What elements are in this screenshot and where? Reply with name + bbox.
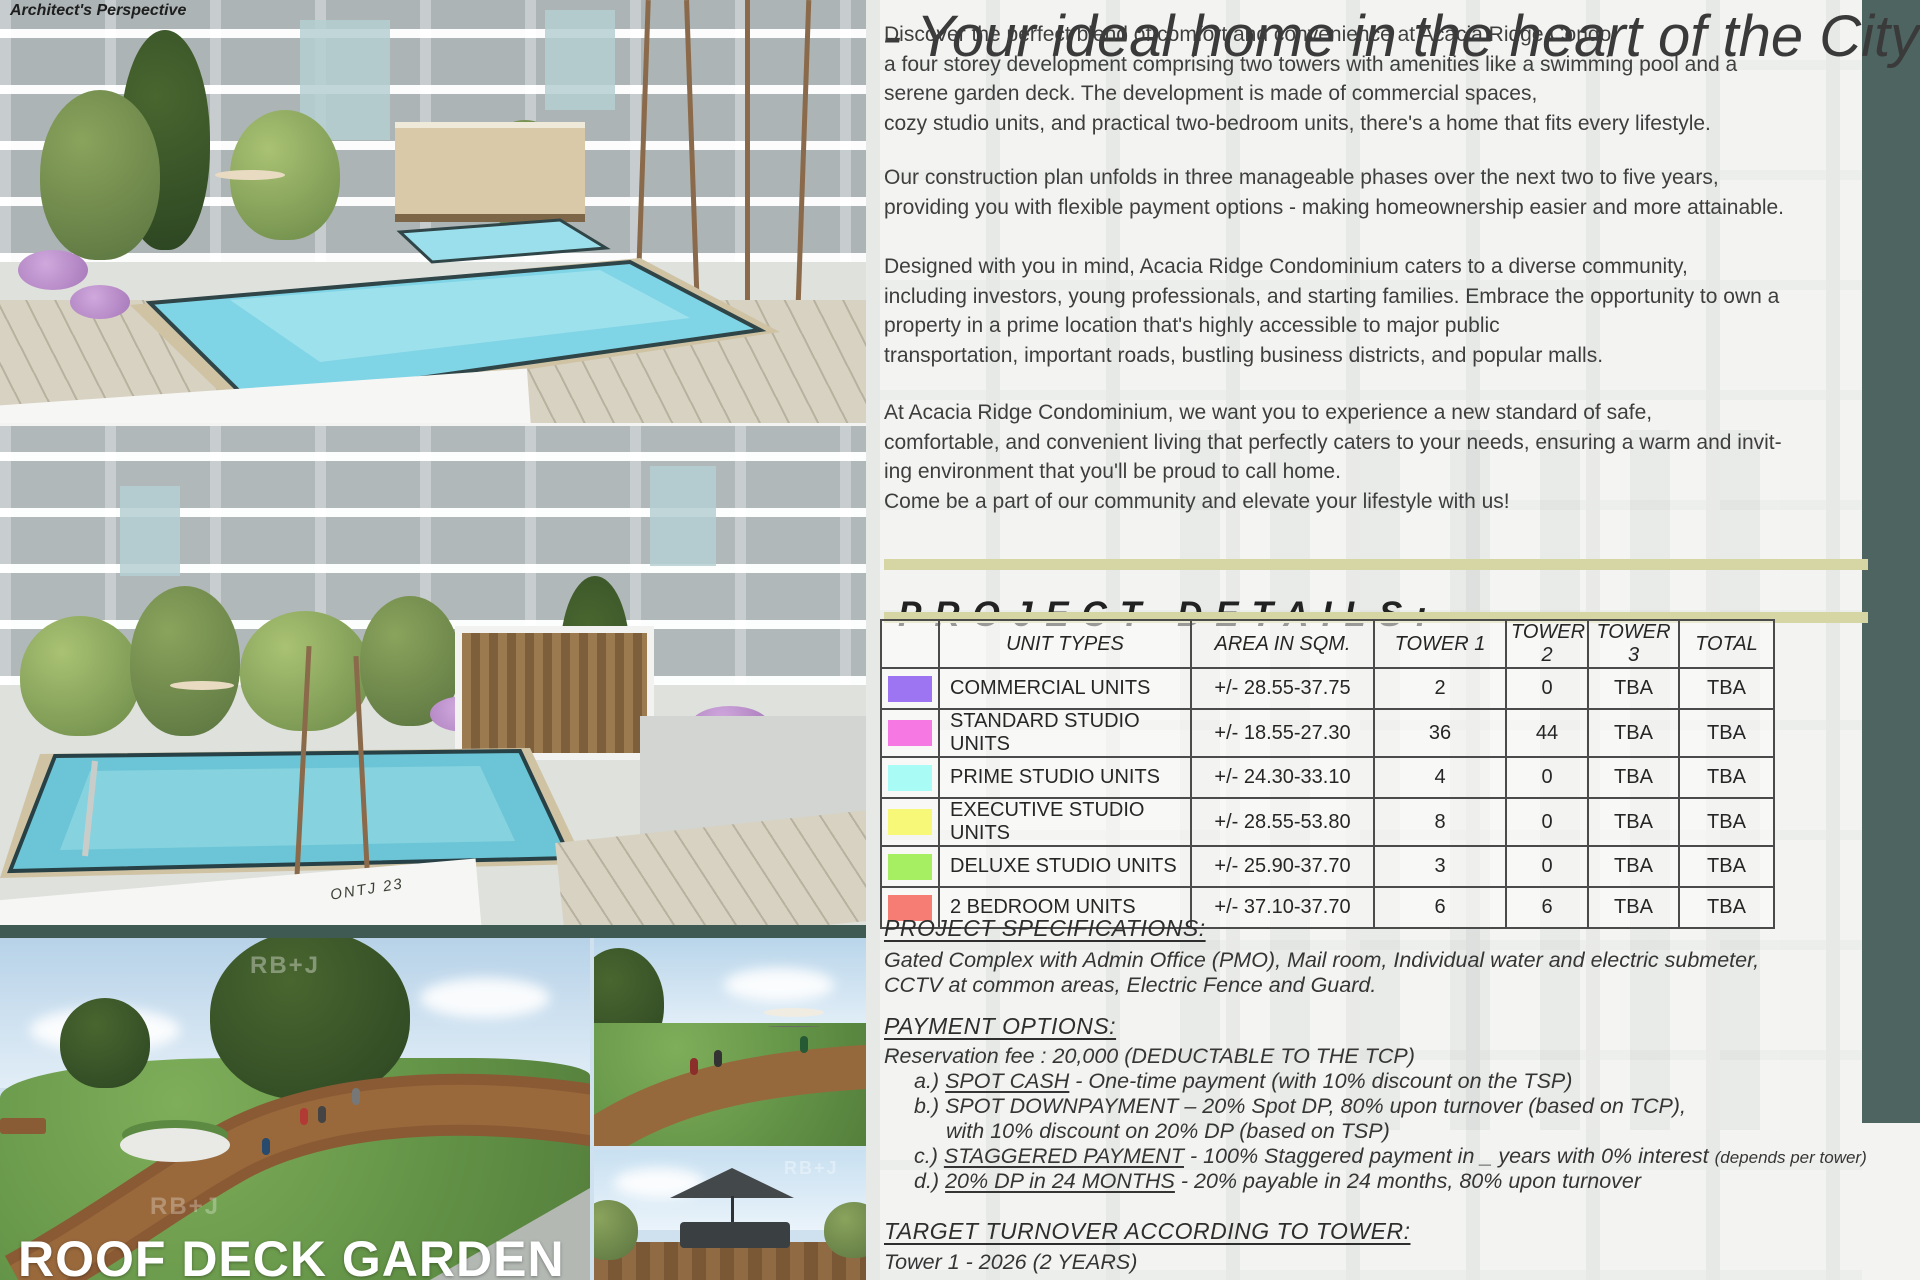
olive-bar-top [884,559,1868,570]
table-cell: 0 [1506,757,1588,798]
paragraph-line: transportation, important roads, bustlin… [884,341,1894,371]
payment-option-description: - 20% payable in 24 months, 80% upon tur… [1175,1169,1641,1193]
table-cell: TBA [1588,668,1679,709]
wood-path [594,938,866,1146]
table-header-cell: TOTAL [1679,620,1774,668]
table-cell: 2 [1374,668,1506,709]
table-cell: TBA [1679,846,1774,887]
render-pool-courtyard: Architect's Perspective [0,0,866,423]
paragraph-line: Our construction plan unfolds in three m… [884,163,1894,193]
paragraph-line: Come be a part of our community and elev… [884,487,1894,517]
table-cell: TBA [1588,798,1679,846]
table-cell: TBA [1679,668,1774,709]
table-cell: TBA [1679,757,1774,798]
paragraph-line: serene garden deck. The development is m… [884,79,1894,109]
payment-intro: Reservation fee : 20,000 (DEDUCTABLE TO … [884,1044,1867,1069]
person-figure [800,1036,808,1053]
table-cell: +/- 28.55-37.75 [1191,668,1374,709]
payment-option-prefix: b.) [914,1094,945,1118]
paragraph-line: including investors, young professionals… [884,282,1894,312]
table-row: EXECUTIVE STUDIO UNITS+/- 28.55-53.8080T… [881,798,1774,846]
flower-bed [70,285,130,319]
bench [0,1118,46,1134]
unit-color-swatch [888,676,932,702]
table-cell: TBA [1588,709,1679,757]
roof-deck-photo-top [594,938,866,1146]
roof-deck-photo-bottom: RB+J [594,1150,866,1280]
watermark: RB+J [250,952,320,980]
table-cell: TBA [1679,798,1774,846]
payment-option: d.) 20% DP in 24 MONTHS - 20% payable in… [884,1169,1867,1194]
table-cell: 36 [1374,709,1506,757]
table-cell: STANDARD STUDIO UNITS [939,709,1191,757]
table-cell: 4 [1374,757,1506,798]
person-figure [714,1050,722,1067]
umbrella [170,681,234,690]
table-row: PRIME STUDIO UNITS+/- 24.30-33.1040TBATB… [881,757,1774,798]
unit-color-swatch [888,809,932,835]
payment-option-description: – 20% Spot DP, 80% upon turnover (based … [1178,1094,1686,1118]
roof-deck-main-photo: RB+J RB+J ROOF DECK GARDEN [0,938,590,1280]
teal-divider-strip [0,925,866,938]
intro-paragraph-4: At Acacia Ridge Condominium, we want you… [884,398,1894,516]
umbrella [764,1008,824,1017]
payment-option-continuation: with 10% discount on 20% DP (based on TS… [884,1119,1867,1144]
intro-paragraph-3: Designed with you in mind, Acacia Ridge … [884,252,1894,370]
table-header-cell: AREA IN SQM. [1191,620,1374,668]
unit-color-swatch [888,854,932,880]
specifications-line: Gated Complex with Admin Office (PMO), M… [884,948,1759,973]
table-cell: 8 [1374,798,1506,846]
table-header-row: UNIT TYPESAREA IN SQM.TOWER 1TOWER 2TOWE… [881,620,1774,668]
unit-color-swatch [888,765,932,791]
table-cell: 0 [1506,668,1588,709]
architect-perspective-label: Architect's Perspective [10,2,186,20]
table-cell: 3 [1374,846,1506,887]
specifications-heading: PROJECT SPECIFICATIONS: [884,915,1759,942]
watermark: RB+J [150,1193,220,1221]
table-row: STANDARD STUDIO UNITS+/- 18.55-27.303644… [881,709,1774,757]
project-specifications-section: PROJECT SPECIFICATIONS: Gated Complex wi… [884,915,1759,998]
unit-color-swatch [888,720,932,746]
render-garden-pool: ONTJ 23 [0,426,866,925]
unit-color-cell [881,798,939,846]
paragraph-line: providing you with flexible payment opti… [884,193,1894,223]
table-row: COMMERCIAL UNITS+/- 28.55-37.7520TBATBA [881,668,1774,709]
paragraph-line: property in a prime location that's high… [884,311,1894,341]
table-header-cell [881,620,939,668]
unit-color-cell [881,757,939,798]
payment-option-name: SPOT DOWNPAYMENT [945,1094,1178,1118]
table-cell: +/- 24.30-33.10 [1191,757,1374,798]
person-figure [690,1058,698,1075]
table-cell: 0 [1506,846,1588,887]
project-details-table: UNIT TYPESAREA IN SQM.TOWER 1TOWER 2TOWE… [880,619,1775,929]
unit-color-cell [881,846,939,887]
payment-option-prefix: d.) [914,1169,945,1193]
paragraph-line: a four storey development comprising two… [884,50,1894,80]
paragraph-line: Discover the perfect blend of comfort an… [884,20,1894,50]
flower-bed [18,250,88,290]
umbrella [215,170,285,180]
curved-wood-path [0,938,590,1280]
payment-option-description: - 100% Staggered payment in _ years with… [1184,1144,1715,1168]
person-figure [262,1138,270,1155]
table-cell: DELUXE STUDIO UNITS [939,846,1191,887]
table-cell: +/- 25.90-37.70 [1191,846,1374,887]
table-cell: +/- 28.55-53.80 [1191,798,1374,846]
pool-shape [0,0,866,423]
payment-option: c.) STAGGERED PAYMENT - 100% Staggered p… [884,1144,1867,1169]
table-cell: PRIME STUDIO UNITS [939,757,1191,798]
table-header-cell: TOWER 2 [1506,620,1588,668]
table-cell: COMMERCIAL UNITS [939,668,1191,709]
table-header-cell: TOWER 1 [1374,620,1506,668]
intro-paragraph-1: Discover the perfect blend of comfort an… [884,20,1894,138]
payment-heading: PAYMENT OPTIONS: [884,1013,1867,1040]
roof-deck-garden-title: ROOF DECK GARDEN [18,1230,565,1280]
turnover-line: Tower 1 - 2026 (2 YEARS) [884,1250,1411,1275]
payment-option-prefix: c.) [914,1144,944,1168]
payment-option: b.) SPOT DOWNPAYMENT – 20% Spot DP, 80% … [884,1094,1867,1119]
payment-option-name: STAGGERED PAYMENT [944,1144,1184,1168]
table-cell: +/- 18.55-27.30 [1191,709,1374,757]
umbrella-canopy [670,1168,794,1198]
payment-option-name: SPOT CASH [945,1069,1069,1093]
specifications-line: CCTV at common areas, Electric Fence and… [884,973,1759,998]
table-cell: EXECUTIVE STUDIO UNITS [939,798,1191,846]
table-cell: TBA [1588,846,1679,887]
payment-option: a.) SPOT CASH - One-time payment (with 1… [884,1069,1867,1094]
paragraph-line: ing environment that you'll be proud to … [884,457,1894,487]
payment-option-list: a.) SPOT CASH - One-time payment (with 1… [884,1069,1867,1194]
round-planter [120,1128,230,1162]
unit-color-cell [881,668,939,709]
target-turnover-section: TARGET TURNOVER ACCORDING TO TOWER: Towe… [884,1218,1411,1275]
payment-option-note: (depends per tower) [1715,1148,1867,1167]
payment-option-name: 20% DP in 24 MONTHS [945,1169,1175,1193]
table-header-cell: TOWER 3 [1588,620,1679,668]
photo-roof-deck-garden: RB+J RB+J ROOF DECK GARDEN [0,938,866,1280]
payment-option-prefix: a.) [914,1069,945,1093]
unit-color-cell [881,709,939,757]
table-cell: 0 [1506,798,1588,846]
person-figure [300,1108,308,1125]
table-header-cell: UNIT TYPES [939,620,1191,668]
paragraph-line: Designed with you in mind, Acacia Ridge … [884,252,1894,282]
paragraph-line: comfortable, and convenient living that … [884,428,1894,458]
person-figure [318,1106,326,1123]
table-row: DELUXE STUDIO UNITS+/- 25.90-37.7030TBAT… [881,846,1774,887]
paragraph-line: cozy studio units, and practical two-bed… [884,109,1894,139]
dining-set [680,1222,790,1248]
turnover-heading: TARGET TURNOVER ACCORDING TO TOWER: [884,1218,1411,1245]
payment-options-section: PAYMENT OPTIONS: Reservation fee : 20,00… [884,1013,1867,1194]
table-cell: TBA [1588,757,1679,798]
table-cell: TBA [1679,709,1774,757]
payment-option-description: - One-time payment (with 10% discount on… [1069,1069,1572,1093]
person-figure [352,1088,360,1105]
table-cell: 44 [1506,709,1588,757]
intro-paragraph-2: Our construction plan unfolds in three m… [884,163,1894,222]
watermark: RB+J [784,1158,839,1179]
paragraph-line: At Acacia Ridge Condominium, we want you… [884,398,1894,428]
